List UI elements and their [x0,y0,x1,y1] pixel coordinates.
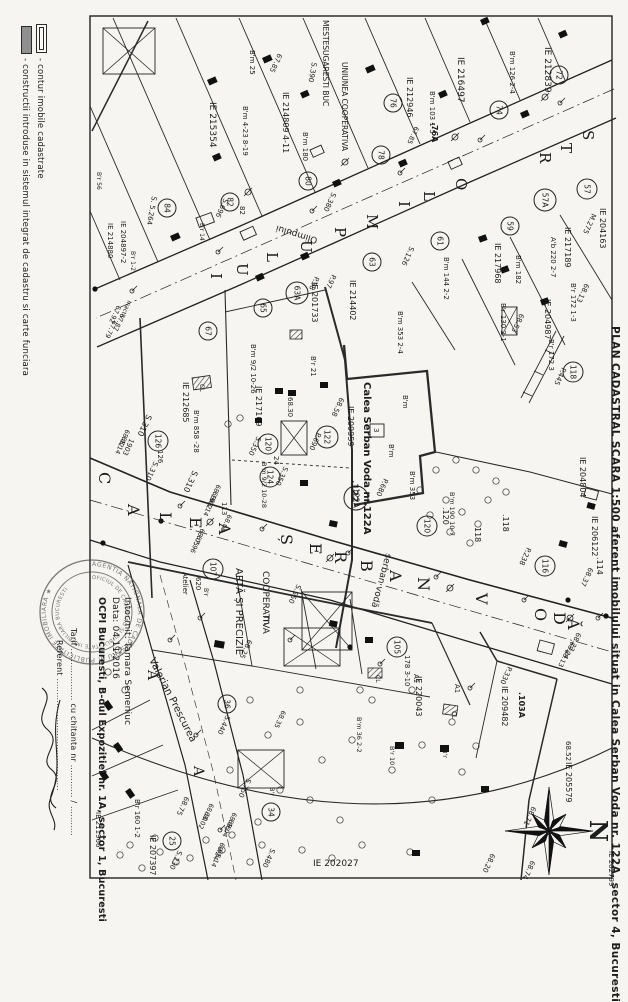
map-label: MESTESUGARESTI BUC [321,20,330,106]
map-label: IE 209482 [500,686,509,727]
map-label: .76A [430,122,439,143]
circled-number-text: 118 [568,365,577,380]
map-label: B'm 190 10-7 [448,492,456,536]
legend-swatch-contur [36,24,47,53]
circled-number: 67 [199,322,217,340]
map-label: B'r [202,588,209,597]
map-label: E [306,543,325,555]
circled-number-text: 126 [153,434,162,449]
map-label: Olimpului [275,223,319,245]
map-label: S.310 [182,469,200,494]
circled-number-text: 65 [258,303,267,313]
map-label: Valerian Prescurea [146,656,198,744]
map-label: 68.37 [579,566,595,588]
map-label: IE 204804 [578,457,587,498]
circled-number: 65 [254,299,272,317]
map-label: 24 [272,456,280,465]
circled-number-text: 57 [582,184,591,194]
circled-number-text: 120 [422,519,431,534]
circled-number: 105 [387,637,407,657]
map-label: 68.52 [564,741,572,761]
map-label: 620 [194,577,202,590]
map-label: B'r 56 [95,172,102,190]
map-label: IE 217189 [563,227,572,268]
map-label: O [452,178,470,190]
map-label: A1 [453,684,461,693]
map-label: IE 217968 [493,243,502,284]
map-label: T [557,143,575,153]
map-label: E [186,517,205,529]
parcel-lines [90,18,612,880]
map-label: 68.30 [286,397,294,417]
map-label: R [331,551,350,564]
map-label: IE 206122 [590,516,599,557]
map-label: m [261,616,271,625]
map-label: M [363,214,381,229]
circled-number: 80 [299,172,317,190]
legend-label-contur: - contur imobile cadastrate [35,58,45,179]
map-label: 68.75 [175,795,191,817]
map-label: M.275 [581,212,597,235]
map-label: B'm 180 [301,132,309,161]
map-label: .118 [501,514,510,532]
map-label: IE 202027 [313,859,359,869]
map-label: S.480 [261,847,277,869]
circled-number-text: 78 [376,150,385,160]
circled-number: 34 [262,803,280,821]
circled-number-text: 80 [303,176,312,186]
circled-number: 63 [363,253,381,271]
map-label: IE 212946 [405,77,414,118]
map-label: IE 205579 [564,762,573,803]
circled-number-text: 105 [392,640,401,655]
circled-number: 107 [203,559,223,579]
circled-number: 57 [577,179,597,199]
circled-number: 120 [417,516,437,536]
plan-title: PLAN CADASTRAL SCARA 1:500 aferent imobi… [609,326,621,1002]
circled-number-text: 74 [494,105,503,115]
map-label: B'm 36 2-2 [355,717,363,753]
map-label: 68.14 [209,848,224,868]
map-label: B'r 10 [388,746,396,765]
map-labels: STROLIMPULUICALEAȘERBANVODĂAAOlimpuluișe… [94,20,615,886]
map-label: .103A [517,692,526,719]
compass-rose [505,787,593,875]
map-label: S.440 [216,714,232,736]
map-label: L [263,252,281,262]
circled-number-text: 25 [167,836,176,846]
map-label: IE 204163 [598,208,607,249]
circled-number: 120 [258,434,278,454]
map-label: P [331,227,349,237]
map-label: B'r 172 3 [547,339,555,371]
map-label: V [472,592,491,605]
referent-line: Referent ...............................… [55,640,64,791]
circled-number: 78 [372,146,390,164]
map-label: Atelier [181,572,189,595]
map-label: S.230 [168,849,184,871]
circled-number: 126 [148,431,168,451]
map-label: P.238 [517,546,532,566]
map-label: B'r [441,749,449,758]
map-label: 3 [372,428,380,432]
map-label: IE 207397 [148,835,157,876]
map-label: B'm 25 [248,50,256,75]
map-label: A [190,765,206,777]
map-label: CL [374,675,381,683]
author-line: Intocmit: Tamara Semeniuc [122,597,132,725]
map-label: 68.13 [556,648,571,668]
circled-number-text: 76 [388,98,397,108]
circled-number-text: 72 [554,70,563,80]
map-label: IE 214880 [106,223,114,258]
map-label: IE 212685 [181,382,190,423]
map-label: 68.53 [510,312,526,334]
map-label: L [420,191,438,201]
subject-parcel-label: Calea Serban Voda nr.122A [361,382,372,535]
map-label: 67.79 [103,319,118,339]
map-label: A [124,503,143,516]
map-label: S.350 [274,465,290,487]
map-label: CL [450,711,457,719]
map-label: A1 [412,674,420,683]
map-label: B'm 353 2-4 [396,311,404,354]
circled-number: 63A [286,282,308,304]
circled-number: 25 [163,832,181,850]
map-label: P.330 [498,665,513,685]
circled-number-text: 124 [265,470,274,485]
map-label: B'm 858 -28 [192,410,200,453]
map-label: IE 216497 [455,57,465,103]
map-label: B'm 4-23 8-19 [241,106,249,156]
map-label: I [395,201,413,207]
map-label: B'm 126 2-4 [508,51,516,94]
circled-number: 116 [535,556,555,576]
map-label: B'm [387,444,395,458]
map-label: O [531,608,550,621]
circled-number-text: 36 [222,699,231,709]
circled-number-text: 84 [162,203,171,213]
cadastral-map: STROLIMPULUICALEAȘERBANVODĂAAOlimpuluișe… [0,0,628,900]
map-label: B'm 182 [514,255,522,284]
circled-number-text: 107 [208,562,217,577]
map-label: 178 3-10 [403,655,411,686]
cadastral-sheet: STROLIMPULUICALEAȘERBANVODĂAAOlimpuluișe… [0,0,628,900]
map-label: 68.02 [196,810,211,830]
circled-number: 57A [534,189,556,211]
map-label: B'r 160 1-2 [133,799,141,838]
map-label: 68.14 [201,497,216,517]
map-label: Ș [277,534,296,545]
circled-number-text: 34 [266,807,275,817]
map-label: S.126 [399,245,415,267]
map-label: P.690 [307,431,322,451]
map-label: L [156,512,175,523]
map-label: 68.20 [481,852,497,874]
circled-number-text: 122A [351,488,360,508]
map-label: 68.58 [330,396,346,418]
map-label: ARTĂ ȘI PRECIZIE [233,568,246,655]
office-line: OCPI Bucuresti, B-dul Expozitiei nr. 1A,… [96,597,107,922]
circled-number-text: 57A [540,193,549,209]
map-label: 82 [238,206,246,215]
map-label: .114 [595,557,604,575]
map-label: IE 204897-2 [119,221,127,263]
map-label: P.97 [324,273,337,289]
map-label: I [207,273,225,279]
circled-number-text: 122 [322,430,331,445]
map-label: S [579,130,597,140]
map-label: S.380 [322,191,338,213]
map-label: 118 [473,527,482,542]
map-label: S.390 [307,62,318,83]
map-label: P.680 [374,477,389,497]
circled-number-text: 120 [263,437,272,452]
circled-number-text: 116 [540,559,549,574]
map-label: B'm [401,395,409,409]
map-label: IE 204987 [543,299,552,340]
circled-number: 59 [501,217,519,235]
map-label: B'r 1-2 [129,251,136,271]
map-label: COOPERATIVA [260,571,270,635]
circled-number-text: 82 [225,197,234,207]
circled-number-text: 61 [435,236,444,246]
map-label: B'r 14 [198,223,205,241]
map-label: CL [198,384,205,392]
map-label: Ă [564,617,584,630]
map-label: B'm 144 2-2 [442,257,450,300]
map-label: UNIUNEA COOPERATIVA [340,62,349,152]
map-label: IE 215354 [207,102,217,148]
circled-number-text: 63 [367,257,376,267]
circled-number-text: 67 [203,326,212,336]
map-label: IE 212839 [542,47,552,93]
subject-ie-label: IE 209959 [346,406,355,447]
map-label: R [536,152,554,164]
map-label: S. 5.264 [145,196,158,226]
circled-number: 76 [384,94,402,112]
map-label: B'r 130 2-1 [499,303,507,342]
map-label: 68.04 [220,818,235,838]
circled-number: 61 [431,232,449,250]
map-label: 67.96 [188,534,203,554]
map-label: IE 214809 4-11 [281,92,290,153]
legend-label-constructii: - constructii introduse in sistemul inte… [20,58,30,376]
map-label: 68.35 [272,709,287,729]
circled-number-text: 63A [292,286,301,302]
circled-number-text: 59 [505,221,514,231]
map-label: A'b 220 2-7 [549,237,557,277]
map-label: IE 214402 [348,280,357,321]
map-label: 67.85 [405,125,420,145]
map-label: N [414,577,433,591]
map-label: B'm 9/2 10-26 [249,344,257,394]
map-label: B'r 172 1-3 [569,283,577,322]
circled-number: 74 [490,101,508,119]
tarif-line: Tarif ................... cu chitanta nr… [69,628,78,836]
map-label: B [357,560,376,572]
circled-number: 84 [158,199,176,217]
map-label: B'r 21 [309,356,317,377]
map-label: U [233,263,251,276]
map-label: B'm 353 [408,471,416,500]
legend-swatch-constructii [21,26,32,54]
date-line: Data: 04.11.2016 [110,597,120,679]
map-label: C [95,472,114,484]
map-label: B'r [268,787,276,796]
